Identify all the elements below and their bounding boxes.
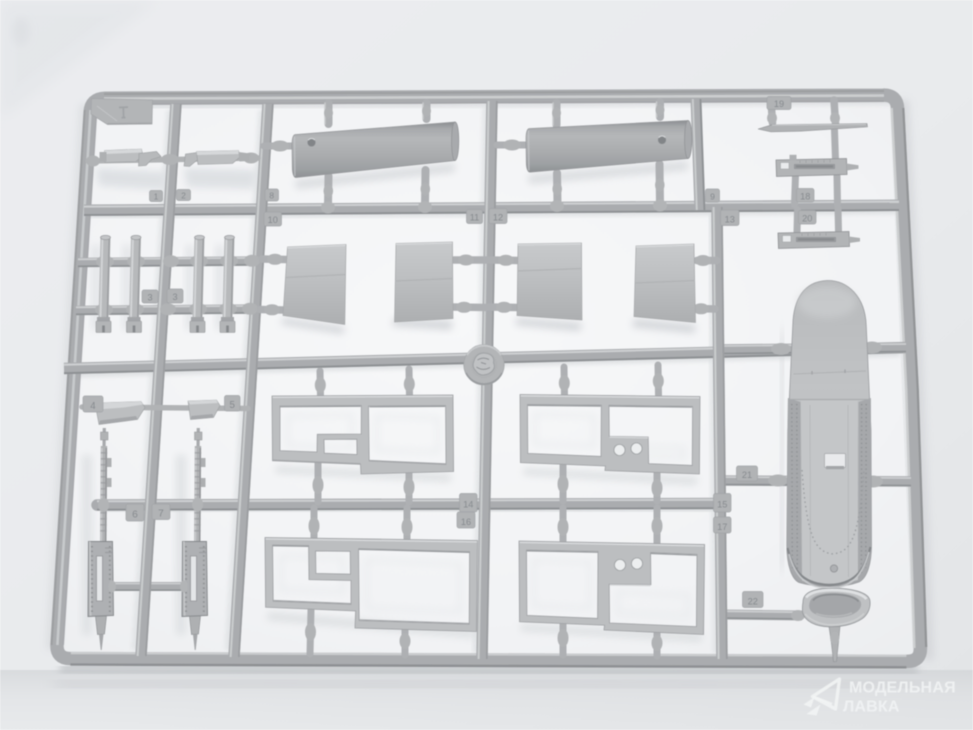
svg-text:4: 4: [90, 401, 96, 412]
svg-text:15: 15: [717, 500, 727, 510]
svg-text:1: 1: [154, 192, 159, 201]
svg-text:ЛАВКА: ЛАВКА: [843, 699, 900, 716]
svg-text:21: 21: [742, 470, 752, 480]
svg-text:12: 12: [493, 212, 503, 222]
svg-text:2: 2: [181, 191, 186, 200]
svg-text:МОДЕЛЬНАЯ: МОДЕЛЬНАЯ: [849, 680, 956, 697]
svg-text:3: 3: [172, 292, 177, 302]
svg-text:6: 6: [132, 509, 138, 520]
svg-text:10: 10: [268, 215, 278, 225]
svg-text:9: 9: [710, 191, 715, 201]
svg-text:11: 11: [470, 213, 480, 223]
svg-text:18: 18: [800, 191, 810, 201]
svg-text:8: 8: [269, 191, 274, 201]
svg-text:22: 22: [748, 596, 758, 606]
svg-text:16: 16: [461, 517, 471, 527]
svg-text:5: 5: [230, 400, 235, 411]
svg-text:7: 7: [158, 509, 164, 520]
svg-text:3: 3: [147, 292, 152, 302]
svg-text:20: 20: [802, 213, 812, 223]
svg-text:14: 14: [463, 500, 473, 510]
svg-text:17: 17: [717, 522, 727, 532]
svg-text:19: 19: [774, 99, 784, 109]
svg-text:13: 13: [725, 214, 735, 224]
